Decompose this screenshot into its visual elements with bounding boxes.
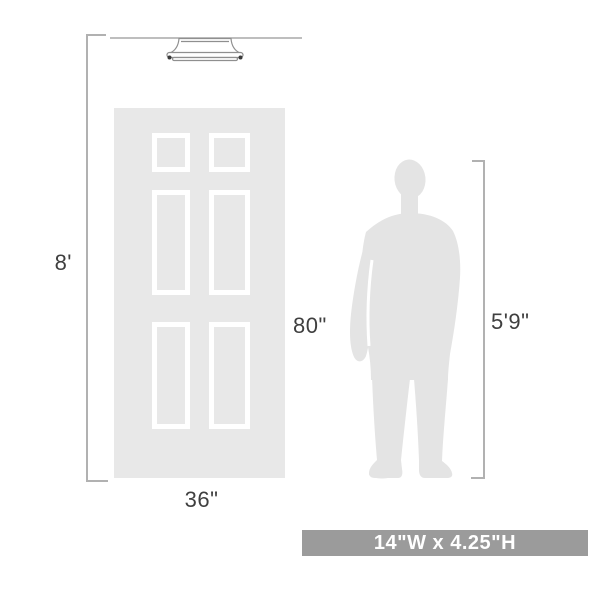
light-finial-left: [168, 56, 172, 60]
light-rim: [167, 53, 243, 58]
product-dimensions-diagram: 8' 80" 36" 5'9" 14"W x 4.25"H: [0, 0, 600, 600]
door-width-label: 36": [114, 487, 289, 513]
person-height-label: 5'9": [491, 309, 529, 335]
person-legs: [369, 376, 452, 478]
person-height-bracket: [471, 161, 484, 478]
door-illustration: [114, 108, 285, 478]
person-head: [393, 158, 428, 200]
ceiling-height-label: 8': [36, 250, 72, 276]
door-slab: [114, 108, 285, 478]
door-height-label: 80": [293, 313, 327, 339]
light-finial-right: [239, 56, 243, 60]
flush-mount-light-icon: [167, 39, 243, 61]
person-silhouette: [350, 158, 460, 479]
diagram-canvas: [0, 0, 600, 600]
person-shoe-left: [369, 470, 395, 479]
person-torso: [361, 213, 460, 380]
light-dome: [170, 39, 240, 54]
fixture-size-badge: 14"W x 4.25"H: [302, 530, 588, 556]
ceiling-height-bracket: [87, 35, 108, 481]
person-neck: [401, 194, 418, 216]
person-shoe-right: [422, 469, 450, 478]
light-glass-bottom: [173, 58, 238, 61]
